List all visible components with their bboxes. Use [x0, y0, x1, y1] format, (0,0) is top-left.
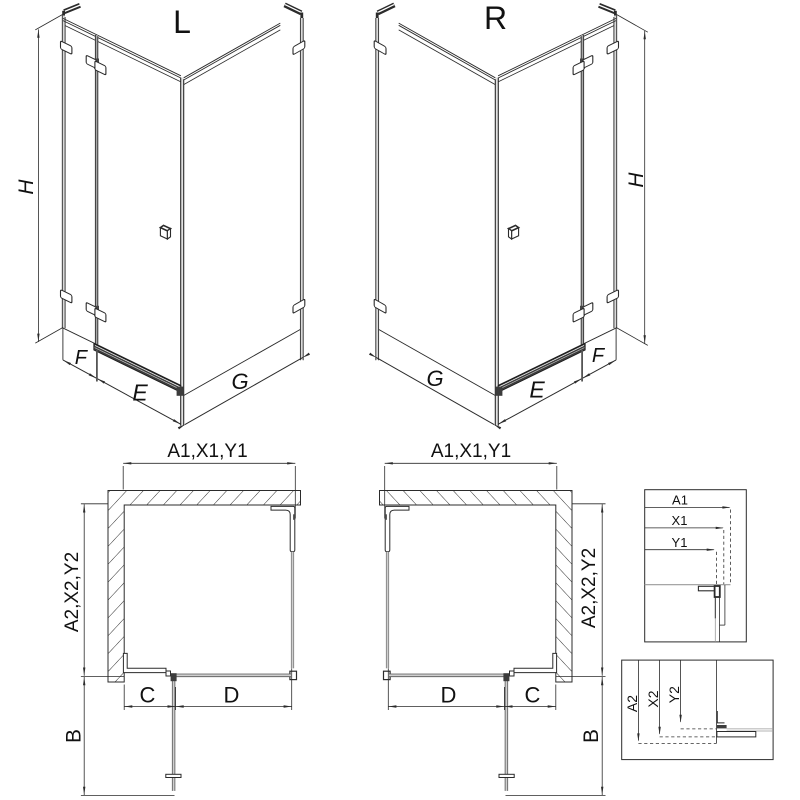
svg-text:E: E [529, 377, 545, 403]
svg-text:G: G [231, 369, 248, 394]
svg-text:A2,X2,Y2: A2,X2,Y2 [62, 552, 83, 632]
svg-text:D: D [441, 683, 457, 708]
svg-text:F: F [592, 345, 606, 367]
svg-text:L: L [173, 4, 191, 40]
svg-text:X1: X1 [672, 513, 688, 528]
svg-text:A1,X1,Y1: A1,X1,Y1 [431, 441, 511, 462]
svg-text:E: E [132, 380, 148, 406]
svg-text:F: F [75, 347, 89, 369]
svg-text:B: B [580, 729, 603, 743]
svg-text:D: D [224, 683, 240, 708]
svg-text:C: C [140, 683, 156, 708]
svg-text:Y1: Y1 [672, 535, 688, 550]
svg-text:H: H [15, 179, 38, 195]
svg-text:R: R [484, 0, 507, 36]
svg-text:C: C [525, 683, 541, 708]
svg-text:H: H [625, 172, 648, 188]
svg-text:A2: A2 [624, 695, 640, 712]
svg-text:G: G [426, 366, 443, 391]
svg-text:A1,X1,Y1: A1,X1,Y1 [167, 441, 247, 462]
svg-text:A2,X2,Y2: A2,X2,Y2 [579, 548, 600, 628]
svg-text:X2: X2 [645, 690, 661, 707]
svg-text:A1: A1 [672, 493, 688, 508]
svg-text:B: B [63, 729, 86, 743]
svg-text:Y2: Y2 [666, 686, 682, 703]
